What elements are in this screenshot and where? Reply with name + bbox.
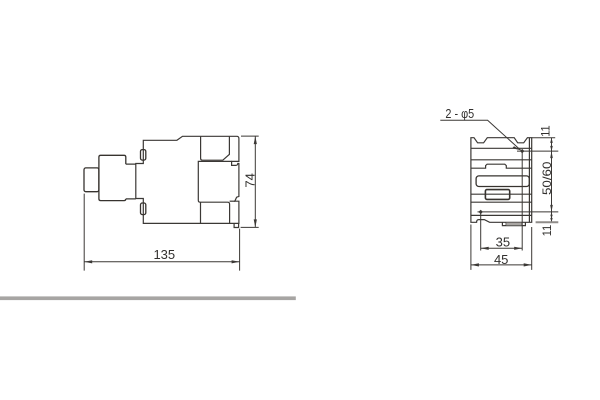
svg-text:35: 35	[496, 234, 510, 249]
svg-text:11: 11	[539, 125, 553, 137]
svg-text:45: 45	[494, 252, 508, 267]
svg-text:2 - φ5: 2 - φ5	[445, 106, 474, 121]
svg-text:74: 74	[242, 173, 257, 187]
svg-text:135: 135	[153, 247, 175, 262]
svg-text:50/60: 50/60	[540, 161, 554, 195]
svg-text:11: 11	[540, 225, 554, 237]
